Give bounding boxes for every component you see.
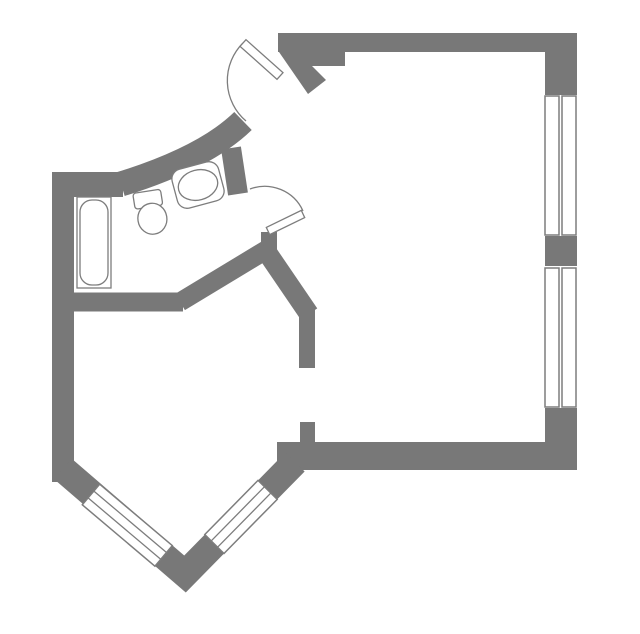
outer-wall-top: [278, 33, 577, 52]
doorway-stub: [300, 422, 315, 442]
entrance-door-leaf: [240, 40, 283, 80]
bay-window-left: [82, 484, 172, 566]
outer-wall-right-upper: [545, 33, 577, 97]
entrance-door: [227, 40, 283, 121]
bathroom-door: [250, 186, 305, 234]
toilet: [133, 189, 169, 237]
entrance-door-swing-arc: [227, 43, 246, 121]
bathtub-basin: [80, 200, 108, 285]
right-window-lower-frame-2: [562, 268, 576, 407]
outer-wall-right-mid: [545, 235, 577, 266]
bay-window-right-band: [205, 480, 277, 553]
right-window-upper-frame-2: [562, 96, 576, 235]
hall-wall-diagonal: [264, 248, 309, 314]
bay-window-right: [205, 480, 277, 553]
outer-wall-left: [52, 172, 74, 482]
bathroom-door-swing-arc: [250, 186, 303, 211]
outer-wall-bottom: [277, 442, 577, 470]
right-window-upper-frame-1: [545, 96, 559, 235]
bathroom-door-post: [231, 148, 238, 194]
bathroom-wall-diagonal: [180, 250, 266, 302]
bathtub: [77, 197, 111, 288]
bathroom-door-leaf: [266, 210, 304, 234]
right-window-lower-frame-1: [545, 268, 559, 407]
right-window-lower: [543, 267, 579, 408]
floor-plan-page: [0, 0, 640, 634]
bathroom-wall-top: [52, 172, 123, 197]
right-window-upper: [543, 95, 579, 236]
floor-plan-drawing: [0, 0, 640, 634]
bay-window-left-band: [82, 484, 172, 566]
